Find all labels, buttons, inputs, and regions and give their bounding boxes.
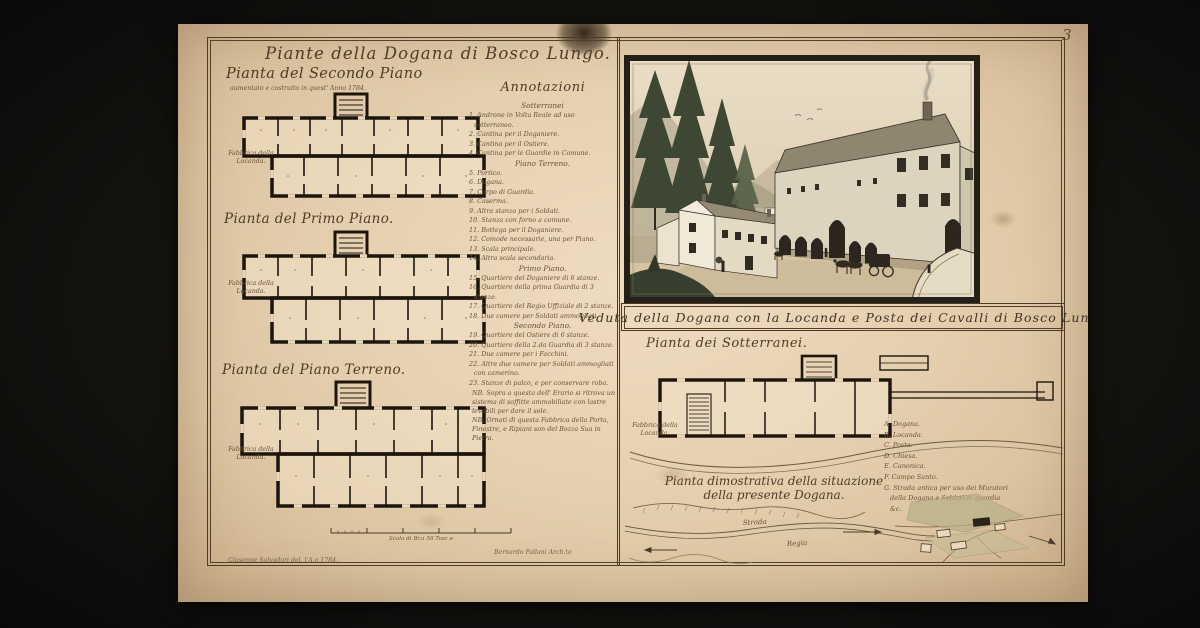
road-label-regia: Regia: [786, 539, 808, 548]
annotazioni-item: 12. Comode necessarie, una per Piano.: [469, 235, 616, 245]
annotazioni-item: 13. Scala principale.: [469, 245, 616, 255]
annotazioni-note: NB. Ornati di questa Fabbrica della Port…: [469, 416, 616, 442]
veduta-painting-frame: [624, 55, 980, 303]
sheet-main-title: Piante della Dogana di Bosco Lungo.: [258, 44, 618, 63]
veduta-painting: [627, 58, 977, 300]
annotazioni-item: 21. Due camere per i Facchini.: [469, 350, 616, 360]
legend-item: D. Chiesa.: [884, 451, 1012, 462]
annotazioni-item: 5. Portico.: [469, 169, 616, 179]
annotazioni-item: 7. Corpo di Guardia.: [469, 188, 616, 198]
annotazioni-heading: Annotazioni: [474, 80, 612, 95]
annotazioni-item: 14. Altra scala secondaria.: [469, 254, 616, 264]
road-label-strada: Strada: [743, 518, 767, 527]
situation-map-title-line1: Pianta dimostrativa della situazione: [665, 474, 883, 488]
margin-label-locanda: Fabbrica della Locanda.: [220, 280, 282, 295]
annotazioni-item: 1. Androne in Volta Reale ad uso sotterr…: [469, 111, 616, 130]
annotazioni-item: 20. Quartiere della 2.da Guardia di 3 st…: [469, 341, 616, 351]
annotazioni-item: 10. Stanza con forno a comune.: [469, 216, 616, 226]
second-floor-subtitle: aumentato e costruito in quest' Anno 178…: [230, 85, 366, 92]
annotazioni-section: Sotterranei: [469, 101, 616, 111]
first-floor-title: Pianta del Primo Piano.: [224, 211, 394, 227]
situation-map-drawing: Strada Regia: [625, 492, 1065, 568]
legend-item: E. Canonica.: [884, 461, 1012, 472]
photograph-background: 3 Piante della Dogana di Bosco Lungo. Pi…: [0, 0, 1200, 628]
annotazioni-item: 4. Cantina per le Guardie in Comune.: [469, 149, 616, 159]
annotazioni-item: 19. Quartiere del Ostiere di 6 stanze.: [469, 331, 616, 341]
margin-label-locanda: Fabbrica della Locanda.: [220, 150, 282, 165]
annotazioni-item: 8. Caserma.: [469, 197, 616, 207]
annotazioni-item: 22. Altre due camere per Soldati ammogli…: [469, 360, 616, 379]
annotazioni-list: Sotterranei 1. Androne in Volta Reale ad…: [469, 101, 616, 443]
second-floor-title: Pianta del Secondo Piano: [226, 66, 423, 82]
annotazioni-section: Piano Terreno.: [469, 159, 616, 169]
annotazioni-item: 3. Cantina per il Ostiere.: [469, 140, 616, 150]
document-sheet: 3 Piante della Dogana di Bosco Lungo. Pi…: [178, 24, 1088, 602]
annotazioni-item: 9. Altra stanza per i Soldati.: [469, 207, 616, 217]
legend-item: A. Dogana.: [884, 419, 1012, 430]
veduta-caption-strip: Veduta della Dogana con la Locanda e Pos…: [621, 303, 1065, 331]
basement-plan-title: Pianta dei Sotterranei.: [646, 336, 807, 351]
annotazioni-item: 11. Bottega per il Doganiere.: [469, 226, 616, 236]
margin-label-locanda: Fabbrica della Locanda.: [627, 422, 683, 437]
panel-divider-rule: [617, 37, 620, 566]
scale-caption: Scala di Br.a 50 Tosc.e: [330, 536, 512, 542]
annotazioni-item: 2. Cantina per il Doganiere.: [469, 130, 616, 140]
annotazioni-item: 15. Quartiere del Doganiere di 6 stanze.: [469, 274, 616, 284]
legend-item: C. Posta.: [884, 440, 1012, 451]
annotazioni-note: NB. Sopra a questa dell' Erario si ritro…: [469, 389, 616, 415]
ground-floor-title: Pianta del Piano Terreno.: [222, 362, 405, 378]
legend-item: B. Locanda.: [884, 430, 1012, 441]
annotazioni-item: 23. Stanze di palco, e per conservare ro…: [469, 379, 616, 389]
veduta-caption: Veduta della Dogana con la Locanda e Pos…: [579, 310, 1088, 325]
draughtsman-signature: Giuseppe Salvadori del. l'A.o 1784.: [228, 557, 338, 564]
annotazioni-item: 16. Quartiere della prima Guardia di 3 s…: [469, 283, 616, 302]
annotazioni-section: Primo Piano.: [469, 264, 616, 274]
annotazioni-item: 6. Dogana.: [469, 178, 616, 188]
architect-signature: Bernardo Fallani Arch.to: [494, 549, 572, 556]
second-floor-plan-drawing: [238, 92, 488, 204]
veduta-caption-inner: Veduta della Dogana con la Locanda e Pos…: [624, 306, 1063, 329]
margin-label-locanda: Fabbrica della Locanda.: [220, 446, 282, 461]
